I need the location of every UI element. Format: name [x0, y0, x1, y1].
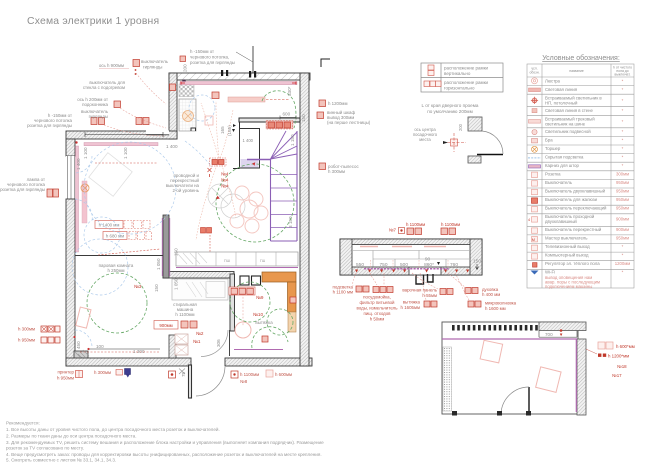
svg-text:950мм: 950мм — [616, 180, 629, 185]
svg-text:h 1100мм: h 1100мм — [441, 222, 460, 227]
svg-text:h -150мм от: h -150мм от — [190, 49, 214, 54]
svg-text:950мм: 950мм — [616, 189, 629, 194]
svg-text:Мастер выключатель: Мастер выключатель — [545, 236, 588, 241]
svg-text:Люстра: Люстра — [545, 79, 561, 84]
svg-text:№17: №17 — [612, 373, 622, 378]
svg-text:подоконника: подоконника — [82, 102, 108, 107]
svg-text:ПШ: ПШ — [224, 259, 230, 263]
svg-text:(165): (165) — [227, 125, 232, 136]
svg-text:h 300мм: h 300мм — [328, 169, 345, 174]
svg-text:550: 550 — [356, 262, 364, 268]
svg-text:4: 4 — [528, 218, 530, 222]
svg-text:№8: №8 — [240, 379, 248, 384]
svg-text:330*: 330* — [287, 86, 292, 96]
svg-text:вытяжка: вытяжка — [403, 300, 421, 305]
svg-text:Выключатель двухклавишный: Выключатель двухклавишный — [545, 189, 606, 194]
svg-text:h 1100мм: h 1100мм — [240, 372, 259, 377]
svg-text:Выключатель для жалюзи: Выключатель для жалюзи — [545, 197, 598, 202]
svg-text:150: 150 — [473, 259, 481, 265]
svg-text:90: 90 — [425, 257, 431, 263]
svg-text:1. Все высоты даны от уровня ч: 1. Все высоты даны от уровня чистого пол… — [6, 426, 220, 432]
svg-text:h 1100мм: h 1100мм — [406, 222, 425, 227]
svg-text:h 300мм: h 300мм — [94, 370, 111, 375]
svg-text:№7: №7 — [389, 228, 397, 233]
svg-text:h 1605мм: h 1605мм — [401, 305, 420, 310]
svg-text:№18: №18 — [617, 364, 627, 369]
svg-text:варочная панель: варочная панель — [402, 288, 437, 293]
svg-text:№9: №9 — [256, 295, 264, 300]
svg-text:пищ. отходов: пищ. отходов — [363, 311, 391, 316]
svg-text:двухклавишный: двухклавишный — [545, 219, 577, 224]
svg-text:950мм: 950мм — [616, 197, 629, 202]
svg-text:подключением машины: подключением машины — [545, 284, 592, 289]
svg-text:№2: №2 — [196, 331, 204, 336]
svg-text:L от края дверного проема: L от края дверного проема — [422, 103, 479, 108]
svg-text:Светильник подвесной: Светильник подвесной — [545, 129, 591, 134]
svg-text:Регулятор эл. тёплого пола: Регулятор эл. тёплого пола — [545, 261, 600, 266]
svg-text:h 1100 мм: h 1100 мм — [333, 290, 353, 295]
svg-text:расположение рамки: расположение рамки — [444, 80, 489, 85]
svg-text:выключат.: выключат. — [615, 73, 631, 77]
svg-text:гирлянды: гирлянды — [89, 114, 108, 119]
svg-text:100: 100 — [96, 344, 104, 349]
svg-text:воды, измельчитель: воды, измельчитель — [357, 306, 399, 311]
svg-text:h 55мм: h 55мм — [422, 293, 437, 298]
svg-text:900мм: 900мм — [616, 227, 629, 232]
svg-text:розетка для гирлянды: розетка для гирлянды — [0, 187, 45, 192]
svg-text:2-ой уровень: 2-ой уровень — [173, 188, 200, 193]
svg-text:№10: №10 — [253, 312, 263, 317]
svg-text:860*: 860* — [424, 262, 434, 268]
svg-text:1 100: 1 100 — [123, 147, 128, 159]
svg-text:Бра: Бра — [545, 138, 553, 143]
svg-text:h 50мм: h 50мм — [370, 317, 385, 322]
svg-text:Торшер: Торшер — [545, 146, 561, 151]
svg-text:h 680 мм: h 680 мм — [106, 234, 124, 239]
svg-text:№4: №4 — [221, 178, 229, 183]
svg-text:гирлянды: гирлянды — [143, 65, 162, 70]
svg-text:розеток за TV согласовано по м: розеток за TV согласовано по месту. — [6, 446, 84, 451]
svg-text:НП, потолочный: НП, потолочный — [545, 101, 578, 106]
svg-text:150: 150 — [174, 248, 179, 256]
svg-text:Схема электрики 1 уровня: Схема электрики 1 уровня — [27, 16, 159, 27]
svg-text:165: 165 — [220, 126, 225, 134]
svg-text:200: 200 — [458, 123, 463, 131]
svg-text:600: 600 — [283, 112, 291, 117]
svg-text:h 600*мм: h 600*мм — [616, 344, 635, 349]
svg-text:1200мм: 1200мм — [615, 261, 631, 266]
svg-text:200: 200 — [183, 64, 188, 72]
svg-text:розетка для гирлянды: розетка для гирлянды — [190, 60, 235, 65]
svg-text:Розетка: Розетка — [545, 172, 561, 177]
svg-text:светильник на шине: светильник на шине — [545, 122, 586, 127]
svg-text:M: M — [532, 238, 535, 242]
svg-text:h 300мм: h 300мм — [18, 327, 35, 332]
svg-text:h 400 мм: h 400 мм — [482, 292, 500, 297]
svg-text:1 100: 1 100 — [83, 147, 88, 159]
svg-text:950мм: 950мм — [616, 206, 629, 211]
svg-text:h 950мм: h 950мм — [57, 376, 74, 381]
svg-text:306: 306 — [216, 339, 221, 347]
svg-text:Скрытая подсветка: Скрытая подсветка — [545, 155, 584, 160]
svg-text:h 600мм: h 600мм — [275, 372, 292, 377]
svg-text:выключатель: выключатель — [141, 59, 169, 64]
svg-text:расположение рамки: расположение рамки — [444, 66, 489, 71]
svg-text:по умолчанию 200мм: по умолчанию 200мм — [427, 109, 473, 114]
svg-text:150: 150 — [301, 114, 306, 122]
svg-text:розетка для гирлянды: розетка для гирлянды — [27, 123, 72, 128]
svg-text:Компьютерный выход: Компьютерный выход — [545, 253, 589, 258]
svg-text:450: 450 — [76, 341, 81, 349]
svg-text:300мм: 300мм — [616, 172, 629, 177]
svg-text:Wi-Fi: Wi-Fi — [545, 270, 555, 275]
svg-text:обозн.: обозн. — [529, 71, 539, 75]
svg-text:150: 150 — [154, 284, 159, 292]
svg-text:название: название — [569, 69, 584, 73]
svg-text:фильтр питьевой: фильтр питьевой — [360, 300, 396, 305]
svg-text:микроволновка: микроволновка — [485, 301, 517, 306]
svg-text:Условные обозначения:: Условные обозначения: — [542, 54, 620, 62]
svg-text:h 1200мм: h 1200мм — [328, 101, 347, 106]
svg-text:h 1400 мм: h 1400 мм — [99, 223, 120, 228]
svg-text:Световая линия в стене: Световая линия в стене — [545, 108, 594, 113]
svg-text:1 050: 1 050 — [174, 278, 179, 290]
svg-text:места: места — [419, 137, 431, 142]
svg-text:2. Размеры по ткани даны до ос: 2. Размеры по ткани даны до оси центра п… — [6, 434, 136, 439]
svg-text:Выключатель: Выключатель — [545, 180, 573, 185]
svg-text:горизонтально: горизонтально — [444, 86, 475, 91]
svg-text:ГШ: ГШ — [260, 259, 265, 263]
svg-text:1 400: 1 400 — [243, 138, 254, 143]
svg-text:760: 760 — [450, 262, 458, 268]
svg-text:ось h 900мм: ось h 900мм — [99, 63, 124, 68]
svg-text:№1: №1 — [193, 339, 201, 344]
svg-text:Выключатель перекрестный: Выключатель перекрестный — [545, 227, 602, 232]
svg-text:Карниз для штор: Карниз для штор — [545, 163, 580, 168]
svg-text:Световая линия: Световая линия — [545, 87, 578, 92]
svg-text:5. Смотреть совместно с листом: 5. Смотреть совместно с листом № 33.1, 3… — [6, 458, 116, 463]
svg-text:вертикально: вертикально — [444, 71, 471, 76]
svg-text:№4: №4 — [221, 184, 229, 189]
svg-text:4. Веще предусмотреть заказ: п: 4. Веще предусмотреть заказ: проводы для… — [6, 451, 322, 457]
svg-text:1 400: 1 400 — [76, 158, 81, 170]
svg-text:750: 750 — [379, 262, 387, 268]
svg-text:стекла с подогревом: стекла с подогревом — [83, 85, 125, 90]
svg-text:700: 700 — [545, 332, 553, 337]
svg-text:вытяжка: вытяжка — [255, 320, 273, 325]
svg-text:1 050: 1 050 — [156, 258, 161, 270]
svg-text:принтер: принтер — [57, 370, 74, 375]
svg-text:Телевизионный выход: Телевизионный выход — [545, 244, 590, 249]
svg-text:h 950мм: h 950мм — [18, 338, 35, 343]
svg-text:950мм: 950мм — [616, 236, 629, 241]
svg-text:чернового потолка,: чернового потолка, — [190, 55, 229, 60]
svg-text:h 250мм: h 250мм — [107, 268, 124, 273]
svg-text:h 1600 мм: h 1600 мм — [485, 306, 506, 311]
svg-text:№3: №3 — [134, 284, 142, 289]
svg-text:Рекомендуется:: Рекомендуется: — [6, 421, 40, 426]
svg-text:1 150: 1 150 — [290, 134, 295, 146]
svg-text:(на перше лестницы): (на перше лестницы) — [327, 120, 371, 125]
svg-text:900мм: 900мм — [159, 323, 172, 328]
svg-text:h 1100мм: h 1100мм — [175, 312, 194, 317]
svg-text:№4: №4 — [221, 172, 229, 177]
svg-text:посудомойка,: посудомойка, — [363, 295, 391, 300]
svg-text:500: 500 — [400, 262, 408, 268]
svg-text:900мм: 900мм — [616, 217, 629, 222]
svg-text:Выключатель переключающий: Выключатель переключающий — [545, 206, 607, 211]
svg-text:h 1200*мм: h 1200*мм — [608, 354, 629, 359]
svg-text:1 400: 1 400 — [166, 144, 178, 149]
svg-text:1 300: 1 300 — [133, 349, 145, 354]
svg-text:3. Для рекомендуемых TV, решит: 3. Для рекомендуемых TV, решить систему … — [6, 439, 324, 445]
